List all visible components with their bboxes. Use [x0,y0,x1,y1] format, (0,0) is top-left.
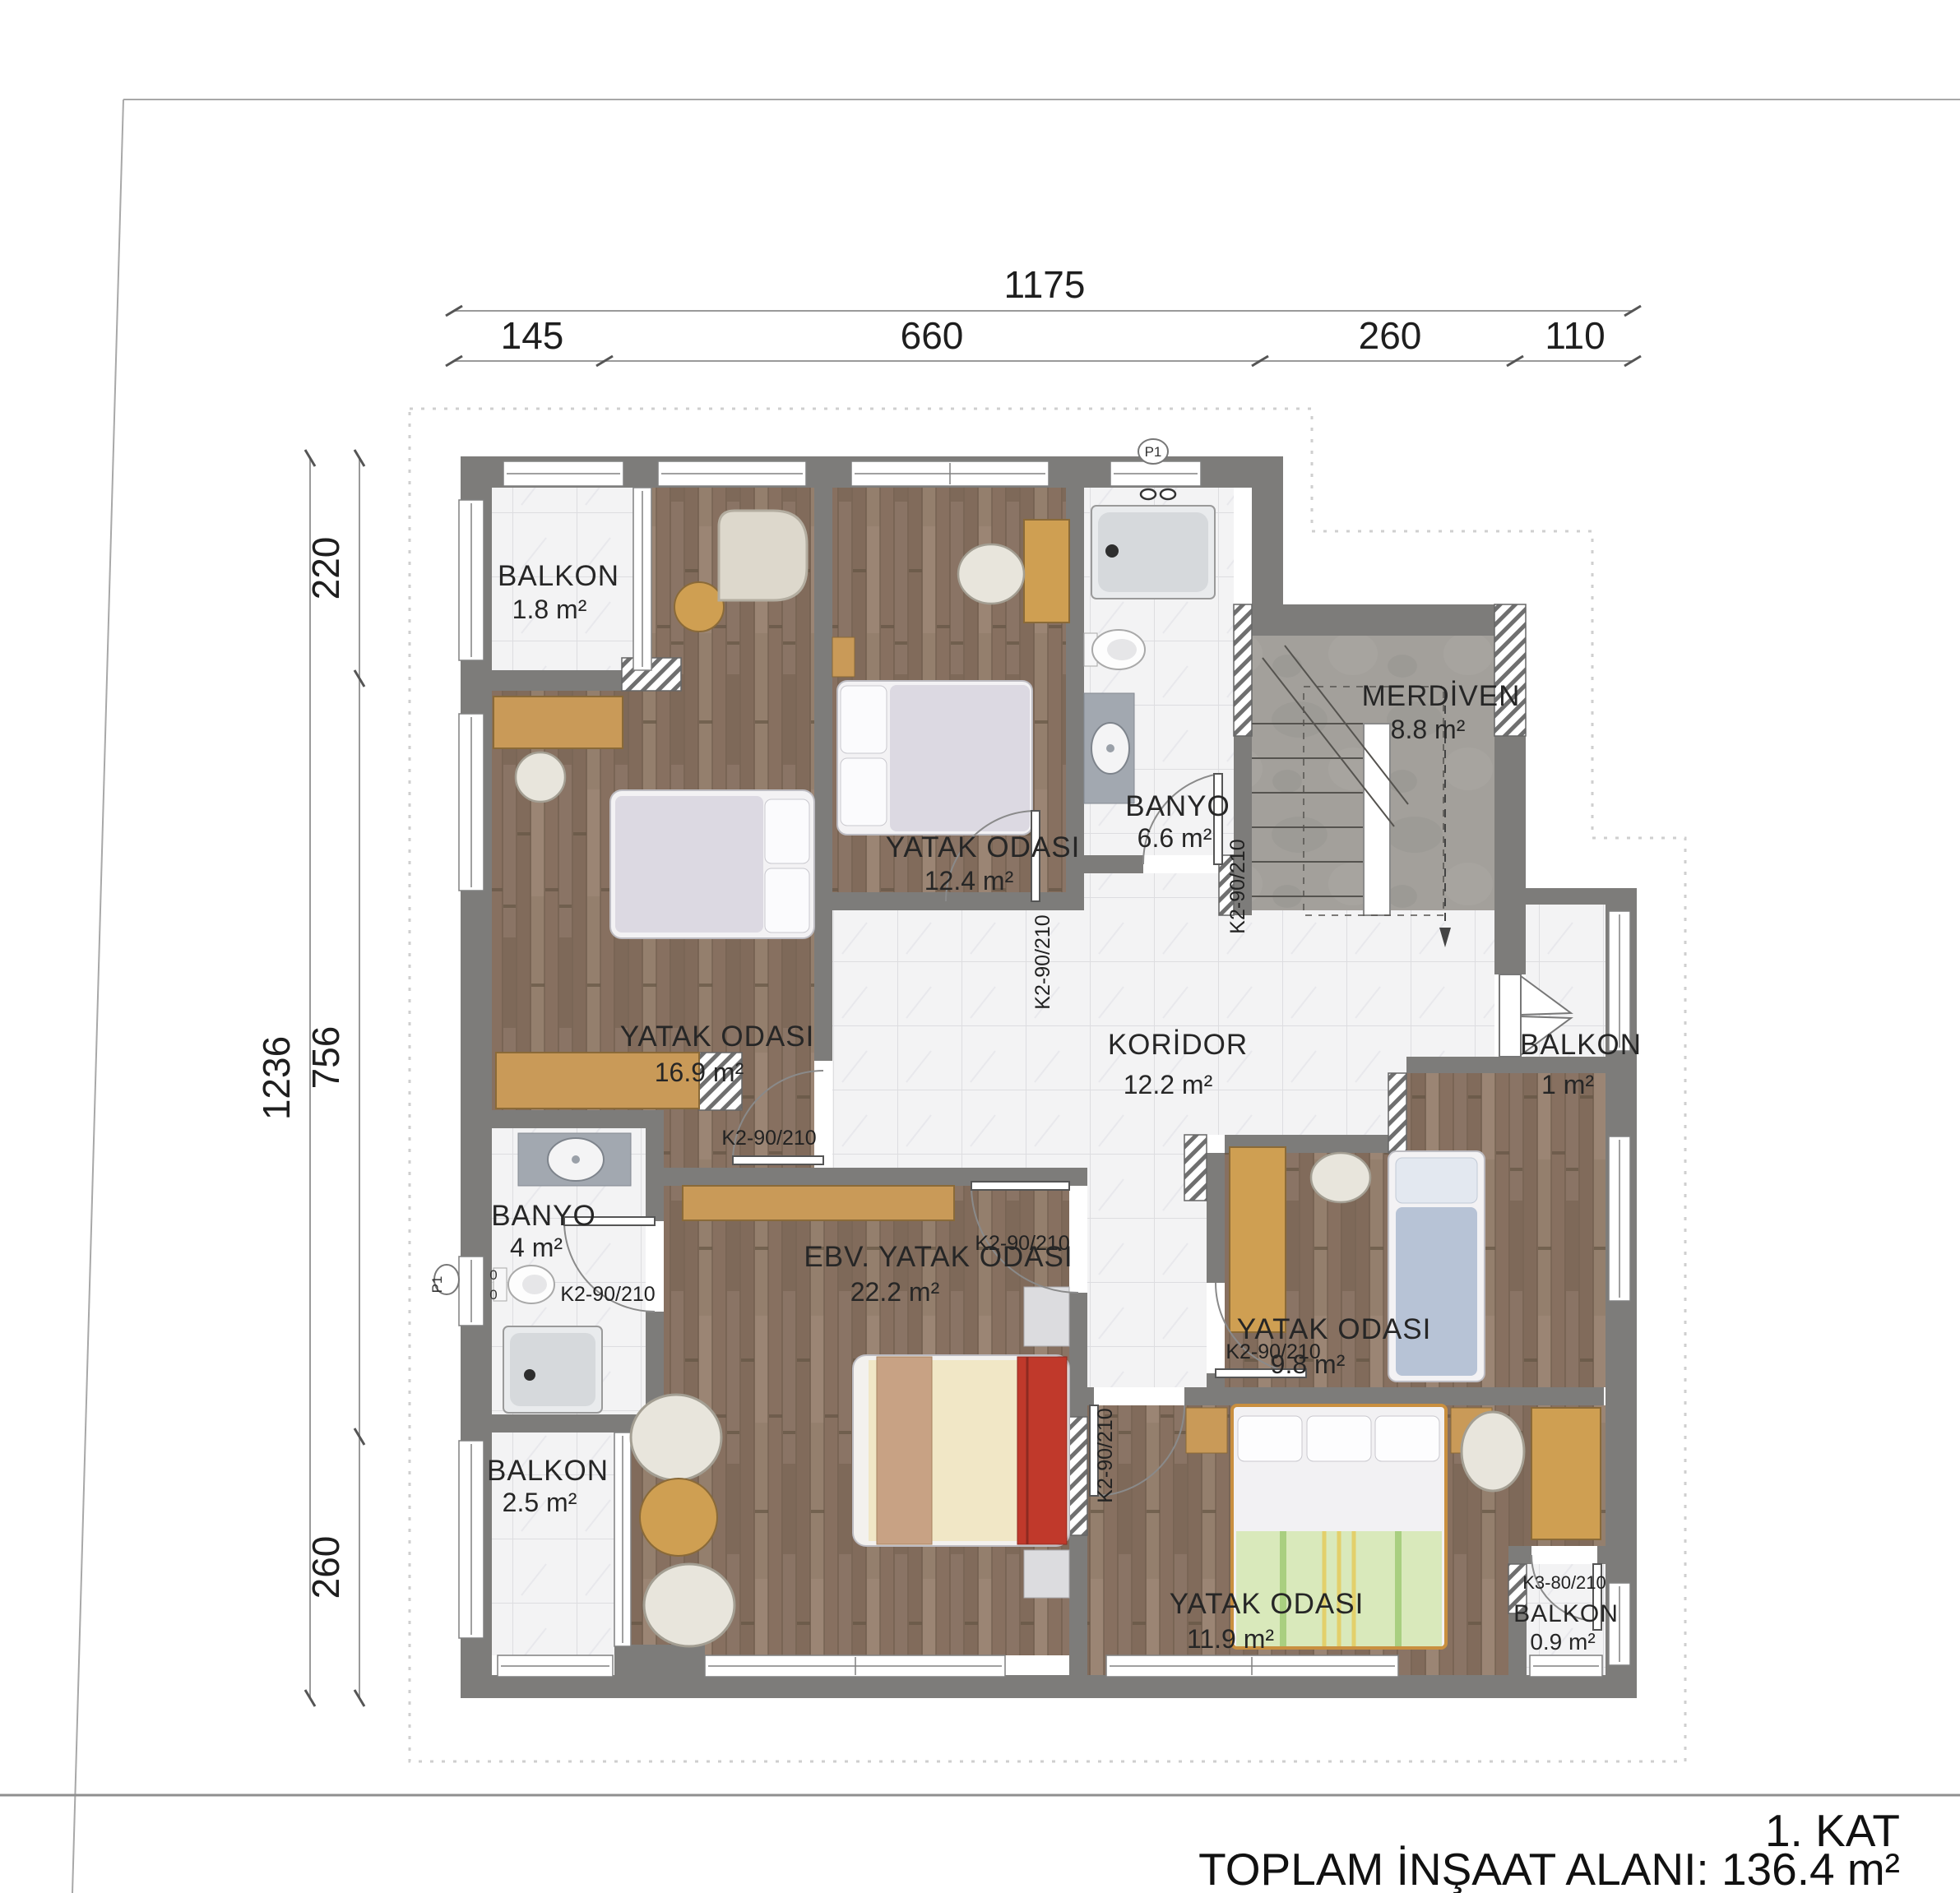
bed-master [853,1355,1069,1546]
dim-left-seg-260: 260 [304,1536,347,1599]
label-balkon1-name: BALKON [1520,1029,1642,1061]
window-top-bedroom12 [851,461,1049,486]
window-mark-zero-2: 0 [489,1287,497,1303]
nightstand-master-top [1024,1287,1069,1346]
bed-double-bedroom16 [610,790,814,938]
label-banyo4-name: BANYO [491,1200,596,1232]
label-bedroom16-area: 16.9 m² [655,1058,744,1087]
nightstand-master-bottom [1024,1550,1069,1598]
label-koridor-area: 12.2 m² [1124,1070,1213,1099]
side-table-bedroom16 [674,582,724,632]
dim-top-seg-260: 260 [1359,314,1422,357]
dim-left-seg-220: 220 [304,537,347,600]
label-banyo4-area: 4 m² [510,1233,563,1262]
armchair-master-1 [631,1395,721,1480]
window-mark-zero-1: 0 [489,1267,497,1283]
desk-bedroom98 [1230,1147,1286,1332]
floor-plan-page: 1175 145 660 260 110 1236 220 756 260 [0,0,1960,1893]
dim-top-seg-145: 145 [501,314,564,357]
marker-p1-top: P1 [1138,439,1168,464]
wardrobe-master [683,1186,954,1220]
window-balkon25-inner [614,1432,631,1646]
window-bottom-balkon09 [1530,1655,1602,1677]
window-bottom-balkon25 [498,1655,613,1677]
door-label-k2-banyo66: K2-90/210 [1226,839,1249,933]
door-label-k2-banyo4: K2-90/210 [560,1283,655,1306]
dim-top-total: 1175 [1004,263,1086,306]
marker-p1-left-label: P1 [429,1276,445,1294]
label-merdiven-area: 8.8 m² [1391,715,1466,744]
chair-bedroom12 [958,544,1024,604]
dim-top-seg-660: 660 [901,314,964,357]
window-left-balkon25 [459,1441,484,1638]
nightstand-bedroom12 [832,637,855,677]
label-merdiven-name: MERDİVEN [1362,680,1521,712]
shower-banyo66 [1091,506,1215,599]
toilet-banyo4 [493,1266,554,1303]
label-banyo66-name: BANYO [1125,790,1230,822]
label-balkon25-area: 2.5 m² [503,1488,577,1517]
label-balkon18-name: BALKON [498,560,619,592]
door-label-k3-balkon09: K3-80/210 [1522,1572,1606,1593]
sink-counter-banyo4 [518,1133,631,1186]
floor-plan-svg: 1175 145 660 260 110 1236 220 756 260 [0,0,1960,1893]
toilet-banyo66 [1084,630,1145,669]
label-bedroom119-name: YATAK ODASI [1170,1588,1365,1620]
label-balkon1-area: 1 m² [1541,1070,1594,1099]
door-label-k2-bedroom12: K2-90/210 [1031,914,1054,1009]
window-top-bedroom16 [658,461,806,486]
chair-bedroom98 [1311,1153,1370,1202]
total-area-title: TOPLAM İNŞAAT ALANI: 136.4 m² [1198,1844,1900,1893]
window-left-banyo4 [459,1257,484,1326]
label-bedroom98-area: 9.8 m² [1271,1349,1346,1379]
nightstand-bedroom119-left [1186,1408,1227,1453]
dim-left-total: 1236 [255,1036,298,1120]
rug-bedroom16 [719,511,807,600]
desk-bedroom16 [493,697,623,748]
label-balkon09-area: 0.9 m² [1530,1629,1595,1655]
label-bedroom119-area: 11.9 m² [1187,1624,1274,1654]
door-label-k2-bedroom16: K2-90/210 [721,1127,816,1150]
label-bedroom16-name: YATAK ODASI [620,1021,815,1053]
desk-bedroom119 [1531,1408,1601,1539]
window-right-bedroom98 [1609,1136,1630,1301]
label-bedroom12-area: 12.4 m² [924,866,1014,896]
label-bedroom12-name: YATAK ODASI [886,831,1081,863]
label-master-name: EBV. YATAK ODASI [804,1241,1073,1273]
window-top-balkon18 [503,461,623,486]
label-balkon18-area: 1.8 m² [512,595,587,624]
label-balkon09-name: BALKON [1513,1600,1619,1627]
label-bedroom98-name: YATAK ODASI [1237,1313,1432,1345]
coffee-table-master [640,1479,717,1556]
window-left-bedroom16 [459,714,484,891]
chair-bedroom16 [516,752,565,802]
label-banyo66-area: 6.6 m² [1138,823,1212,853]
dim-top-seg-110: 110 [1545,314,1605,357]
bed-bedroom12 [837,681,1032,835]
label-koridor-name: KORİDOR [1108,1029,1248,1061]
shower-banyo4 [503,1326,602,1413]
door-label-k2-bedroom119: K2-90/210 [1094,1408,1117,1502]
armchair-master-2 [644,1564,734,1646]
label-balkon25-name: BALKON [487,1455,609,1487]
marker-p1-left: P1 [429,1265,459,1294]
sink-banyo66 [1084,693,1134,803]
window-bottom-bedroom119 [1106,1655,1398,1677]
window-balkon18-inner [633,488,651,670]
dim-left-seg-756: 756 [304,1026,347,1090]
label-master-area: 22.2 m² [850,1277,940,1307]
armchair-bedroom119 [1462,1412,1524,1491]
window-left-balkon18 [459,500,484,660]
window-bottom-master [705,1655,1005,1677]
marker-p1-top-label: P1 [1145,444,1162,460]
desk-bedroom12 [1024,520,1069,623]
bed-bedroom98 [1388,1151,1485,1382]
